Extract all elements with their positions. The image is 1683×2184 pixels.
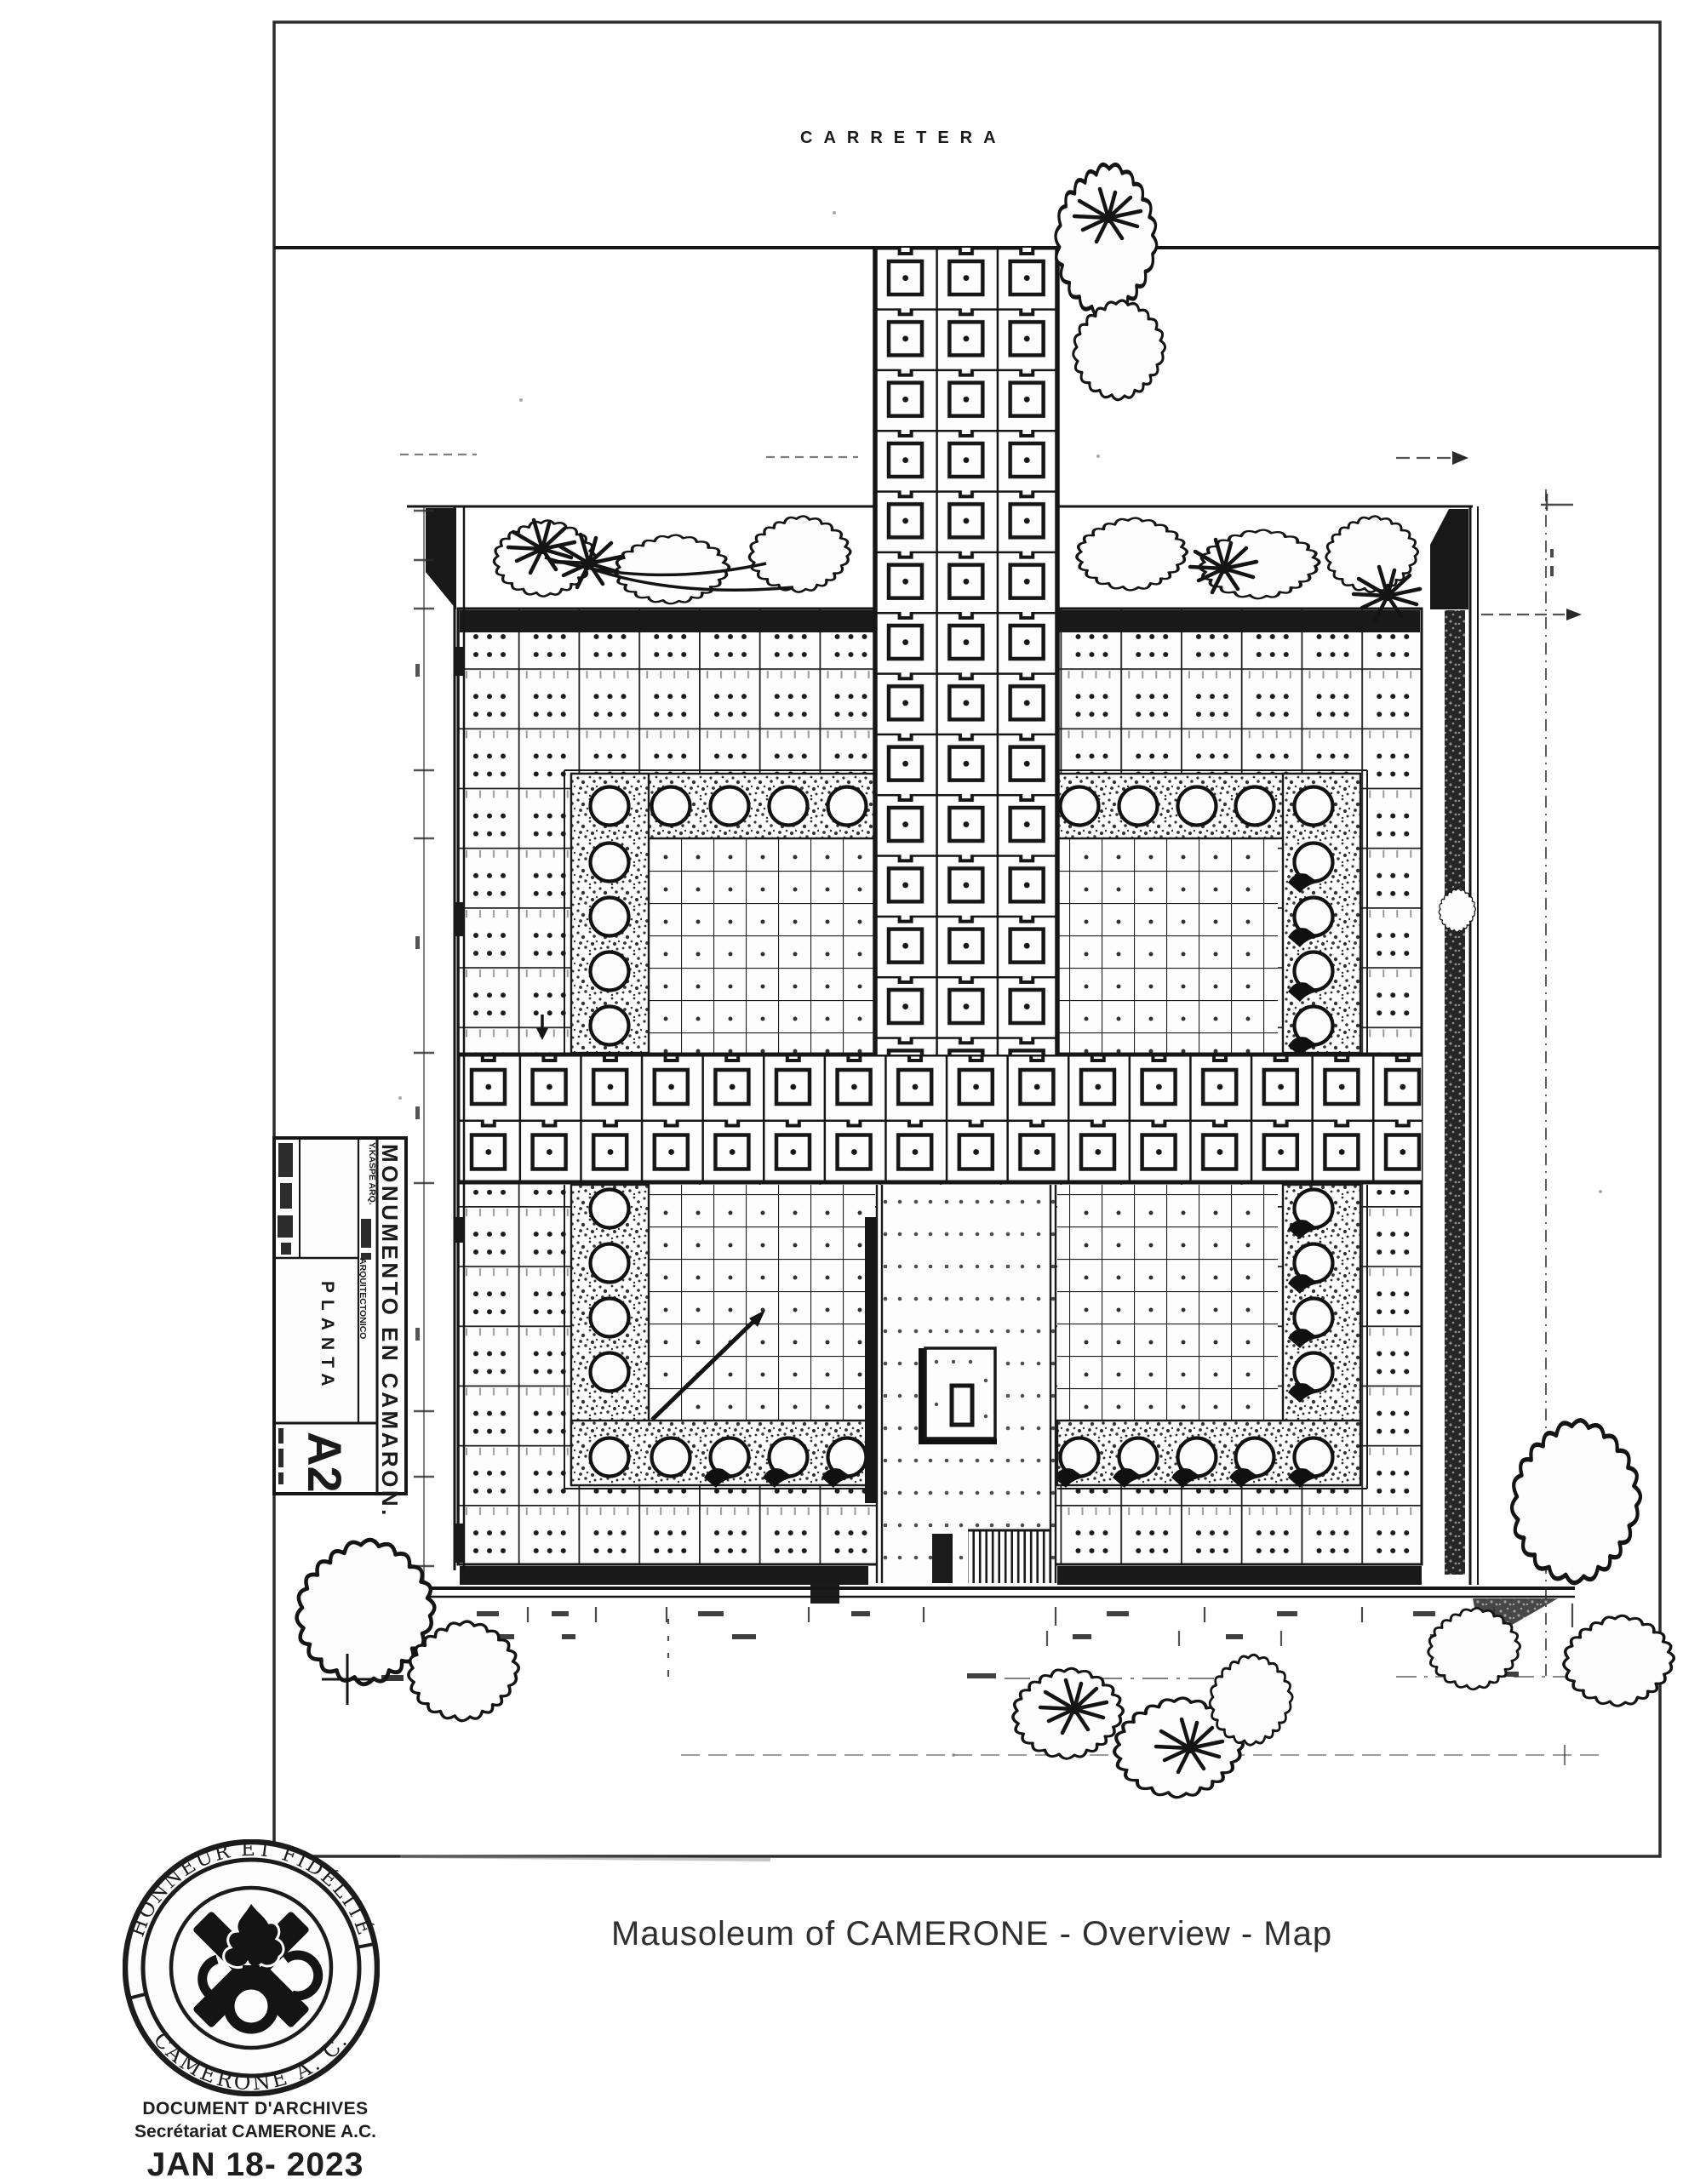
page-caption: Mausoleum of CAMERONE - Overview - Map bbox=[611, 1915, 1332, 1953]
monument bbox=[919, 1348, 997, 1444]
east-wall bbox=[1445, 506, 1478, 1585]
east-planter bbox=[1430, 509, 1468, 609]
archive-footer-line2: Secrétariat CAMERONE A.C. bbox=[94, 2122, 417, 2142]
scanned-archive-page: { "plan": { "road_label": "CARRETERA", "… bbox=[0, 0, 1683, 2179]
cross-walkway-vertical bbox=[875, 248, 1057, 1055]
archive-date-stamp: JAN 18- 2023 bbox=[94, 2147, 417, 2184]
road-carretera: CARRETERA bbox=[274, 129, 1660, 248]
archive-footer-line1: DOCUMENT D'ARCHIVES bbox=[94, 2099, 417, 2119]
entrance-steps bbox=[968, 1530, 1050, 1583]
archive-footer: DOCUMENT D'ARCHIVES Secrétariat CAMERONE… bbox=[94, 2099, 417, 2184]
west-planter bbox=[426, 508, 456, 609]
title-block-credit1: Y.KASPE ARQ. bbox=[367, 1142, 377, 1205]
title-block-project: MONUMENTO EN CAMARON. bbox=[377, 1144, 403, 1518]
title-block-sheet-code: A2 bbox=[298, 1432, 352, 1493]
title-block-credit2: ARQUITECTONICO bbox=[358, 1258, 368, 1339]
shrub bbox=[1050, 153, 1164, 327]
camerone-seal: HONNEUR ET FIDÉLITÉ CAMERONE A. C. bbox=[123, 1839, 380, 2096]
wall-shadow bbox=[865, 1217, 878, 1503]
title-block-sheet-name: PLANTA bbox=[318, 1281, 337, 1393]
title-block: MONUMENTO EN CAMARON. Y.KASPE ARQ. ARQUI… bbox=[274, 1138, 406, 1518]
cross-walkway-horizontal bbox=[458, 1055, 1422, 1182]
road-label: CARRETERA bbox=[800, 129, 1007, 147]
